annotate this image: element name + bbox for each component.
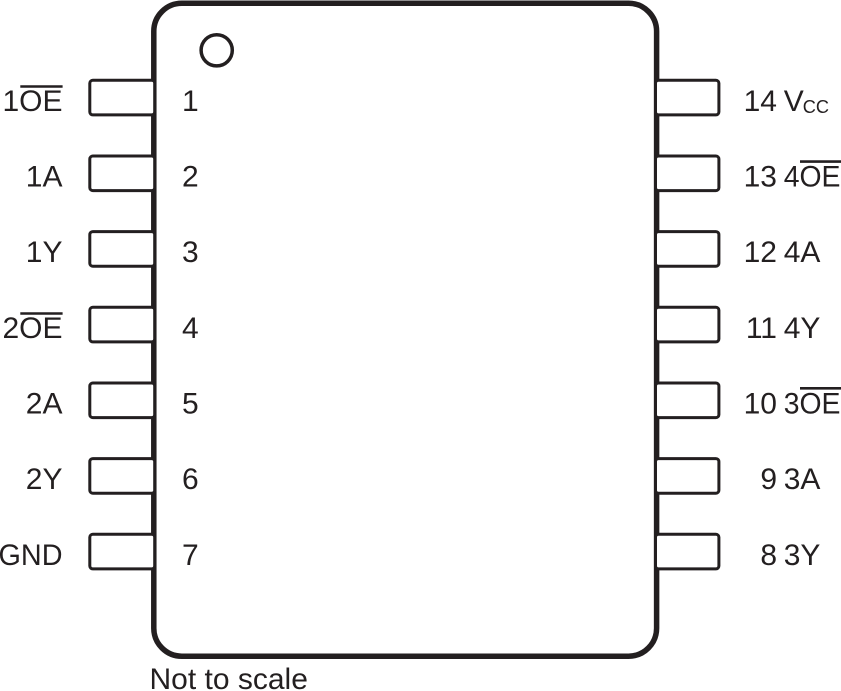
- svg-text:11: 11: [746, 312, 777, 345]
- svg-text:14: 14: [744, 85, 777, 118]
- svg-text:1A: 1A: [26, 161, 63, 194]
- svg-text:3Y: 3Y: [784, 539, 821, 572]
- svg-text:1: 1: [182, 85, 199, 118]
- svg-text:4OE: 4OE: [784, 161, 841, 194]
- svg-text:6: 6: [182, 463, 199, 496]
- svg-text:4: 4: [182, 312, 199, 345]
- svg-text:1OE: 1OE: [2, 85, 62, 118]
- svg-text:9: 9: [760, 463, 777, 496]
- svg-text:2OE: 2OE: [2, 312, 62, 345]
- svg-text:7: 7: [182, 539, 199, 572]
- svg-text:4Y: 4Y: [784, 312, 821, 345]
- svg-text:3: 3: [182, 236, 199, 269]
- svg-text:10: 10: [744, 387, 777, 420]
- svg-text:4A: 4A: [784, 236, 821, 269]
- svg-text:GND: GND: [0, 539, 63, 572]
- svg-text:2Y: 2Y: [26, 463, 63, 496]
- svg-text:13: 13: [744, 161, 777, 194]
- svg-text:Not to scale: Not to scale: [150, 663, 308, 691]
- svg-text:1Y: 1Y: [26, 236, 63, 269]
- svg-text:2: 2: [182, 161, 199, 194]
- svg-text:8: 8: [760, 539, 777, 572]
- svg-text:3A: 3A: [784, 463, 821, 496]
- svg-text:5: 5: [182, 387, 199, 420]
- svg-text:3OE: 3OE: [784, 387, 841, 420]
- svg-text:2A: 2A: [26, 387, 63, 420]
- svg-text:12: 12: [744, 236, 777, 269]
